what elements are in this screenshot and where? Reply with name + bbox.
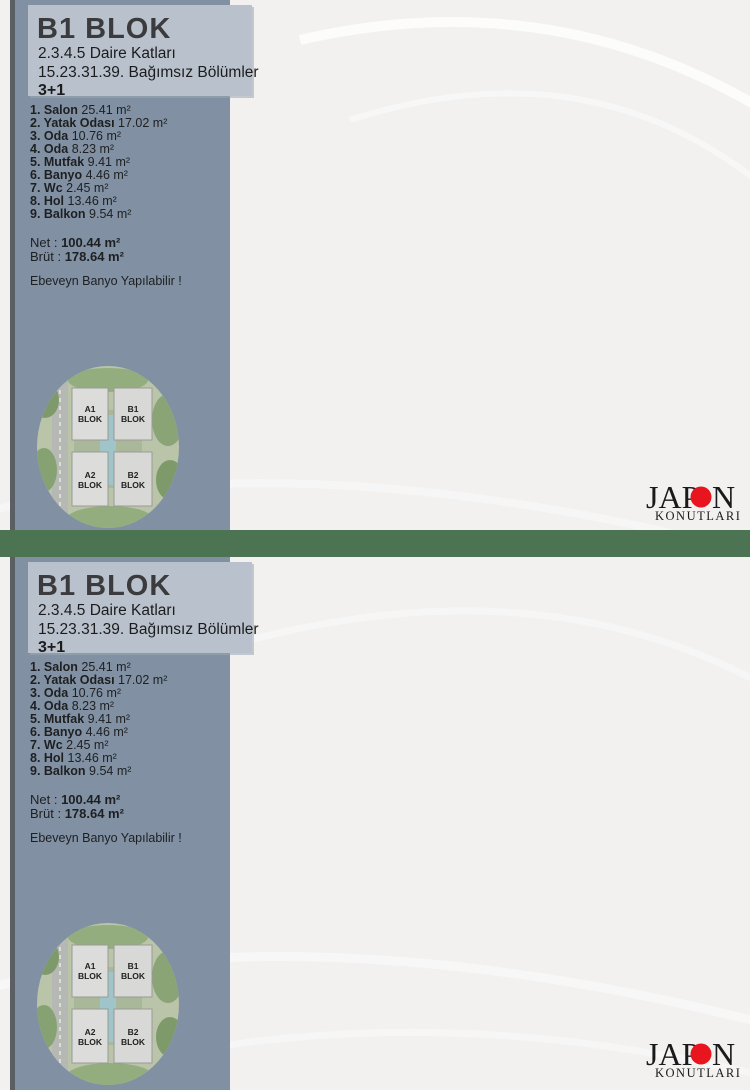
svg-text:5. Mutfak 9.41 m²: 5. Mutfak 9.41 m² [30,712,130,726]
svg-text:B1 BLOK: B1 BLOK [37,570,171,602]
svg-text:BLOK: BLOK [121,971,146,981]
svg-text:3+1: 3+1 [38,639,65,656]
svg-text:15.23.31.39. Bağımsız Bölümler: 15.23.31.39. Bağımsız Bölümler [38,621,259,638]
svg-text:BLOK: BLOK [78,480,103,490]
svg-text:2.3.4.5 Daire Katları: 2.3.4.5 Daire Katları [38,45,176,62]
svg-text:3. Oda 10.76 m²: 3. Oda 10.76 m² [30,686,121,700]
svg-text:1. Salon 25.41 m²: 1. Salon 25.41 m² [30,660,131,674]
svg-text:3+1: 3+1 [38,82,65,99]
svg-text:Ebeveyn Banyo Yapılabilir !: Ebeveyn Banyo Yapılabilir ! [30,831,182,845]
svg-text:15.23.31.39. Bağımsız Bölümler: 15.23.31.39. Bağımsız Bölümler [38,64,259,81]
svg-text:A2: A2 [85,470,96,480]
svg-text:BLOK: BLOK [121,480,146,490]
svg-text:7. Wc 2.45 m²: 7. Wc 2.45 m² [30,181,109,195]
svg-text:BLOK: BLOK [121,1037,146,1047]
svg-text:6. Banyo 4.46 m²: 6. Banyo 4.46 m² [30,725,128,739]
svg-text:Brüt : 178.64 m²: Brüt : 178.64 m² [30,249,125,264]
svg-text:9. Balkon 9.54 m²: 9. Balkon 9.54 m² [30,764,131,778]
svg-text:BLOK: BLOK [78,1037,103,1047]
svg-text:KONUTLARI: KONUTLARI [655,1066,741,1080]
svg-text:KONUTLARI: KONUTLARI [655,509,741,523]
svg-text:B2: B2 [128,470,139,480]
svg-text:3. Oda 10.76 m²: 3. Oda 10.76 m² [30,129,121,143]
svg-text:BLOK: BLOK [78,414,103,424]
svg-text:1. Salon 25.41 m²: 1. Salon 25.41 m² [30,103,131,117]
svg-text:BLOK: BLOK [78,971,103,981]
svg-text:8. Hol 13.46 m²: 8. Hol 13.46 m² [30,194,117,208]
svg-text:BLOK: BLOK [121,414,146,424]
svg-text:4. Oda 8.23 m²: 4. Oda 8.23 m² [30,142,114,156]
svg-text:5. Mutfak 9.41 m²: 5. Mutfak 9.41 m² [30,155,130,169]
svg-text:B1 BLOK: B1 BLOK [37,13,171,45]
svg-text:B1: B1 [128,404,139,414]
svg-text:9. Balkon 9.54 m²: 9. Balkon 9.54 m² [30,207,131,221]
svg-text:Net : 100.44 m²: Net : 100.44 m² [30,792,121,807]
svg-text:2. Yatak Odası 17.02 m²: 2. Yatak Odası 17.02 m² [30,116,167,130]
svg-text:6. Banyo 4.46 m²: 6. Banyo 4.46 m² [30,168,128,182]
svg-text:A2: A2 [85,1027,96,1037]
svg-text:Brüt : 178.64 m²: Brüt : 178.64 m² [30,806,125,821]
svg-text:B1: B1 [128,961,139,971]
svg-text:B2: B2 [128,1027,139,1037]
svg-text:7. Wc 2.45 m²: 7. Wc 2.45 m² [30,738,109,752]
svg-text:A1: A1 [85,961,96,971]
svg-text:2. Yatak Odası 17.02 m²: 2. Yatak Odası 17.02 m² [30,673,167,687]
svg-text:Ebeveyn Banyo Yapılabilir !: Ebeveyn Banyo Yapılabilir ! [30,274,182,288]
svg-text:A1: A1 [85,404,96,414]
svg-text:8. Hol 13.46 m²: 8. Hol 13.46 m² [30,751,117,765]
svg-text:2.3.4.5 Daire Katları: 2.3.4.5 Daire Katları [38,602,176,619]
svg-text:4. Oda 8.23 m²: 4. Oda 8.23 m² [30,699,114,713]
svg-text:Net : 100.44 m²: Net : 100.44 m² [30,235,121,250]
